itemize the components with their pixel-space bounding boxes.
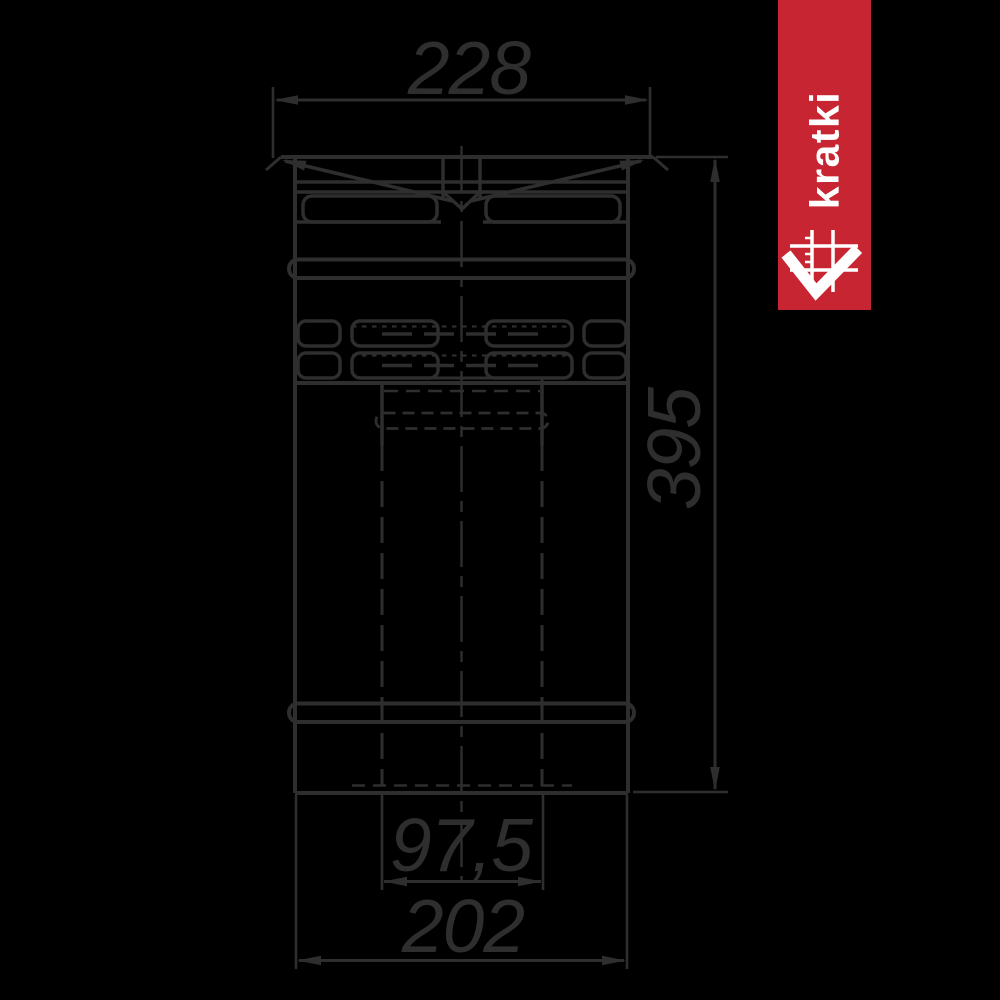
upper-slot-left (303, 196, 437, 222)
arrow-up (710, 158, 720, 182)
dim-value-bottom-outer: 202 (401, 884, 524, 968)
dim-value-bottom-inner: 97,5 (390, 803, 533, 887)
arrow-right (602, 956, 626, 966)
dim-value-right: 395 (632, 387, 716, 510)
brand-wordmark: kratki (801, 91, 848, 209)
dimension-bottom-inner: 97,5 (382, 794, 543, 890)
dimension-top: 228 (273, 26, 650, 158)
arrow-left (297, 956, 321, 966)
drawing-canvas: 228 395 97,5 202 kratki (0, 0, 1000, 1000)
part-outline (266, 157, 668, 793)
brand-badge: kratki (778, 0, 871, 310)
kratki-logo-icon (778, 222, 871, 304)
hidden-lines (352, 146, 572, 881)
upper-slot-right (486, 196, 620, 222)
flange-right-bevel (653, 157, 668, 170)
dim-value-top: 228 (407, 26, 531, 110)
arrow-left (274, 95, 298, 105)
dimension-right: 395 (632, 157, 728, 792)
funnel-arrow-right (620, 160, 645, 171)
arrow-right (625, 95, 649, 105)
arrow-down (710, 767, 720, 791)
flange-left-bevel (266, 157, 281, 170)
